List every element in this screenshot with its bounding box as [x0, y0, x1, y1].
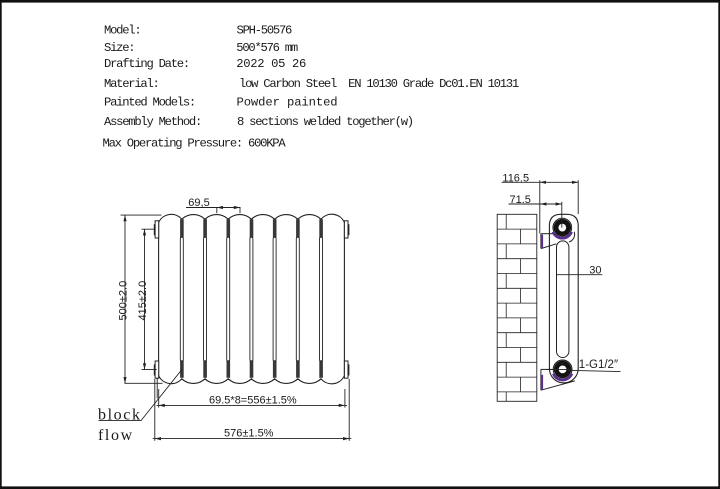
svg-text:576±1.5%: 576±1.5% — [224, 428, 274, 440]
svg-text:Material:: Material: — [104, 77, 159, 91]
svg-text:Painted Models:: Painted Models: — [104, 95, 195, 109]
svg-text:Model:: Model: — [104, 24, 140, 38]
svg-text:116.5: 116.5 — [502, 172, 529, 184]
svg-text:500*576 mm: 500*576 mm — [236, 41, 298, 55]
svg-text:Max Operating Pressure: 600KPA: Max Operating Pressure: 600KPA — [103, 136, 287, 150]
svg-text:69,5: 69,5 — [188, 197, 209, 209]
svg-text:low Carbon Steel EN 10130 Gra: low Carbon Steel EN 10130 Grade Dc01.EN … — [239, 77, 519, 91]
svg-text:Drafting Date:: Drafting Date: — [104, 57, 189, 71]
svg-text:SPH-50576: SPH-50576 — [237, 24, 293, 38]
svg-text:Size:: Size: — [104, 41, 134, 55]
svg-text:415±2.0: 415±2.0 — [137, 281, 149, 321]
svg-text:71.5: 71.5 — [510, 194, 531, 206]
svg-text:Powder painted: Powder painted — [237, 95, 338, 109]
svg-text:Assembly Method:: Assembly Method: — [104, 115, 201, 129]
svg-text:30: 30 — [589, 265, 601, 277]
svg-text:8 sections welded together(w): 8 sections welded together(w) — [237, 115, 413, 129]
svg-text:2022 05 26: 2022 05 26 — [236, 57, 306, 71]
svg-text:69.5*8=556±1.5%: 69.5*8=556±1.5% — [209, 395, 297, 407]
svg-text:500±2.0: 500±2.0 — [118, 281, 130, 321]
svg-text:flow: flow — [98, 427, 134, 444]
svg-text:1-G1/2″: 1-G1/2″ — [579, 359, 618, 371]
